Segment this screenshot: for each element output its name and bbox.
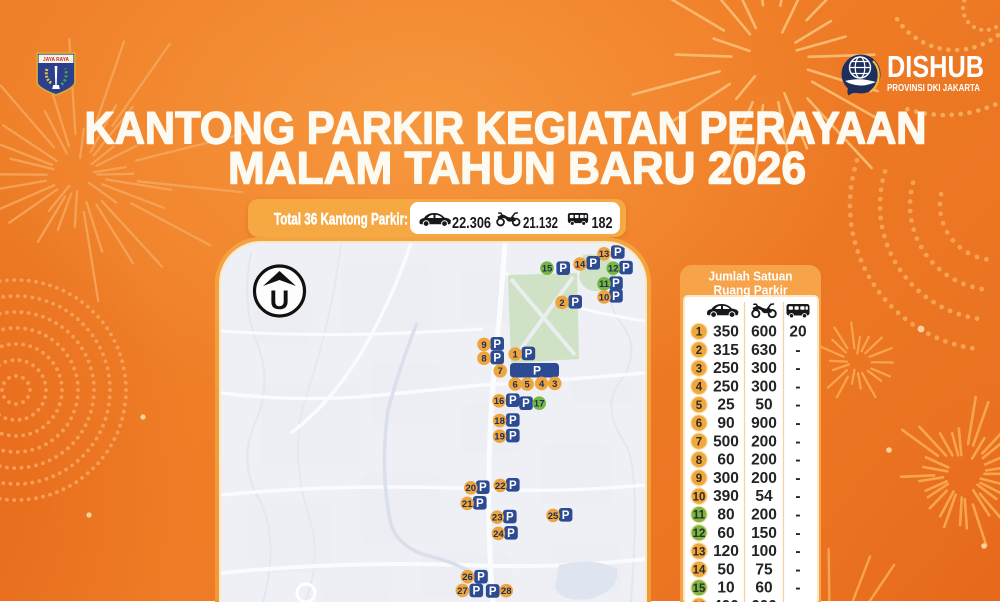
svg-text:54: 54	[755, 488, 773, 505]
svg-text:P: P	[622, 263, 630, 275]
svg-text:300: 300	[713, 470, 739, 487]
svg-text:P: P	[509, 431, 517, 443]
svg-text:-: -	[795, 415, 800, 432]
svg-text:-: -	[795, 598, 800, 602]
svg-text:P: P	[614, 247, 622, 259]
svg-text:400: 400	[713, 598, 739, 602]
svg-text:5: 5	[696, 400, 703, 412]
svg-text:-: -	[795, 470, 800, 487]
svg-text:600: 600	[751, 598, 777, 602]
svg-text:MALAM TAHUN BARU 2026: MALAM TAHUN BARU 2026	[228, 143, 806, 194]
svg-text:60: 60	[755, 580, 772, 597]
svg-text:10: 10	[599, 292, 610, 303]
svg-text:P: P	[612, 291, 620, 303]
svg-text:315: 315	[713, 342, 739, 359]
svg-text:20: 20	[789, 324, 806, 341]
svg-text:Total 36 Kantong Parkir:: Total 36 Kantong Parkir:	[274, 210, 408, 229]
svg-text:P: P	[525, 348, 533, 360]
svg-text:-: -	[795, 360, 800, 377]
svg-text:50: 50	[755, 397, 772, 414]
svg-text:-: -	[795, 433, 800, 450]
svg-text:14: 14	[575, 259, 586, 270]
svg-text:3: 3	[552, 379, 557, 390]
svg-text:26: 26	[462, 572, 473, 583]
svg-text:DISHUB: DISHUB	[887, 50, 984, 84]
svg-text:21.132: 21.132	[523, 215, 558, 232]
svg-text:50: 50	[717, 561, 734, 578]
svg-text:2: 2	[559, 298, 564, 309]
svg-text:200: 200	[751, 470, 777, 487]
svg-text:P: P	[493, 353, 501, 365]
svg-text:120: 120	[713, 543, 739, 560]
svg-text:200: 200	[751, 433, 777, 450]
svg-text:3: 3	[696, 363, 702, 375]
svg-text:P: P	[476, 498, 484, 510]
svg-text:JAYA RAYA: JAYA RAYA	[43, 57, 69, 63]
svg-text:P: P	[612, 278, 620, 290]
svg-text:250: 250	[713, 378, 739, 395]
svg-text:23: 23	[492, 513, 503, 524]
svg-text:-: -	[795, 397, 800, 414]
svg-text:9: 9	[696, 473, 702, 485]
svg-text:15: 15	[693, 583, 706, 595]
svg-text:25: 25	[717, 397, 735, 414]
svg-text:900: 900	[751, 415, 777, 432]
svg-text:19: 19	[494, 432, 505, 443]
svg-text:150: 150	[751, 525, 777, 542]
svg-text:11: 11	[599, 279, 610, 290]
svg-text:24: 24	[493, 529, 504, 540]
svg-text:P: P	[589, 258, 597, 270]
svg-text:22: 22	[495, 481, 506, 492]
svg-text:10: 10	[693, 491, 706, 503]
svg-text:1: 1	[513, 349, 519, 360]
svg-text:28: 28	[501, 586, 512, 597]
svg-text:200: 200	[751, 452, 777, 469]
svg-text:8: 8	[481, 354, 486, 365]
svg-text:600: 600	[751, 324, 777, 341]
svg-text:P: P	[509, 480, 517, 492]
svg-text:13: 13	[693, 546, 706, 558]
svg-text:-: -	[795, 543, 800, 560]
svg-text:Jumlah Satuan: Jumlah Satuan	[709, 269, 793, 284]
svg-text:-: -	[795, 488, 800, 505]
svg-text:P: P	[507, 528, 515, 540]
svg-text:P: P	[571, 297, 579, 309]
svg-text:P: P	[509, 395, 517, 407]
svg-text:9: 9	[481, 340, 486, 351]
svg-text:-: -	[795, 342, 800, 359]
svg-text:500: 500	[713, 433, 739, 450]
svg-text:-: -	[795, 580, 800, 597]
svg-text:-: -	[795, 507, 800, 524]
svg-text:80: 80	[717, 507, 734, 524]
svg-text:7: 7	[498, 366, 503, 377]
svg-text:-: -	[795, 525, 800, 542]
svg-text:-: -	[795, 561, 800, 578]
svg-text:2: 2	[696, 345, 702, 357]
svg-text:12: 12	[608, 264, 619, 275]
svg-text:10: 10	[717, 580, 734, 597]
svg-text:182: 182	[592, 215, 613, 232]
svg-text:6: 6	[696, 418, 702, 430]
svg-text:6: 6	[513, 379, 518, 390]
svg-text:60: 60	[717, 452, 734, 469]
svg-text:630: 630	[751, 342, 777, 359]
svg-text:16: 16	[494, 396, 505, 407]
svg-text:P: P	[493, 339, 501, 351]
svg-text:200: 200	[751, 507, 777, 524]
svg-text:250: 250	[713, 360, 739, 377]
svg-text:17: 17	[534, 399, 545, 410]
svg-text:-: -	[795, 452, 800, 469]
svg-text:22.306: 22.306	[452, 215, 491, 232]
svg-text:5: 5	[525, 379, 531, 390]
svg-text:11: 11	[693, 510, 706, 522]
svg-text:P: P	[506, 512, 514, 524]
svg-text:14: 14	[693, 565, 706, 577]
svg-text:-: -	[795, 378, 800, 395]
svg-text:1: 1	[696, 327, 703, 339]
svg-text:U: U	[270, 285, 290, 315]
svg-text:27: 27	[457, 586, 468, 597]
svg-text:21: 21	[462, 499, 473, 510]
svg-text:Ruang Parkir: Ruang Parkir	[714, 283, 788, 298]
svg-text:P: P	[477, 572, 485, 584]
svg-text:20: 20	[466, 483, 477, 494]
svg-text:60: 60	[717, 525, 734, 542]
svg-text:18: 18	[494, 416, 505, 427]
svg-text:P: P	[509, 415, 517, 427]
svg-text:390: 390	[713, 488, 739, 505]
svg-text:100: 100	[751, 543, 777, 560]
svg-text:P: P	[472, 585, 480, 597]
svg-text:4: 4	[539, 379, 545, 390]
svg-text:300: 300	[751, 360, 777, 377]
svg-text:15: 15	[542, 264, 553, 275]
svg-text:P: P	[489, 586, 497, 598]
svg-text:7: 7	[696, 437, 702, 449]
svg-text:25: 25	[548, 511, 559, 522]
svg-text:13: 13	[599, 249, 610, 260]
svg-text:P: P	[479, 482, 487, 494]
svg-text:P: P	[522, 398, 530, 410]
svg-text:90: 90	[717, 415, 734, 432]
svg-text:4: 4	[696, 382, 703, 394]
svg-text:8: 8	[696, 455, 703, 467]
svg-text:12: 12	[693, 528, 706, 540]
svg-text:P: P	[559, 263, 567, 275]
svg-text:P: P	[562, 510, 570, 522]
svg-text:300: 300	[751, 378, 777, 395]
svg-text:350: 350	[713, 324, 739, 341]
svg-text:P: P	[533, 364, 541, 378]
svg-text:75: 75	[755, 561, 773, 578]
